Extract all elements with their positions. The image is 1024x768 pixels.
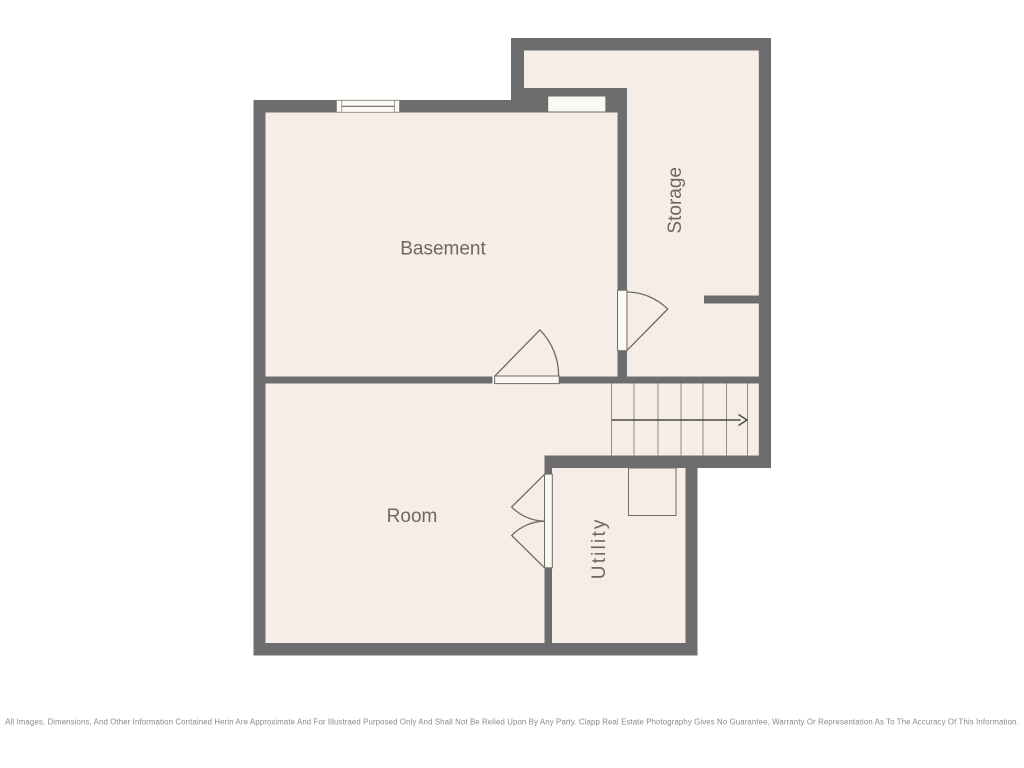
svg-text:Basement: Basement [400, 239, 486, 260]
svg-text:Utility: Utility [589, 517, 610, 579]
svg-text:Storage: Storage [665, 167, 686, 234]
svg-text:Room: Room [387, 506, 438, 527]
svg-text:All Images, Dimensions, And Ot: All Images, Dimensions, And Other Inform… [5, 718, 1019, 727]
